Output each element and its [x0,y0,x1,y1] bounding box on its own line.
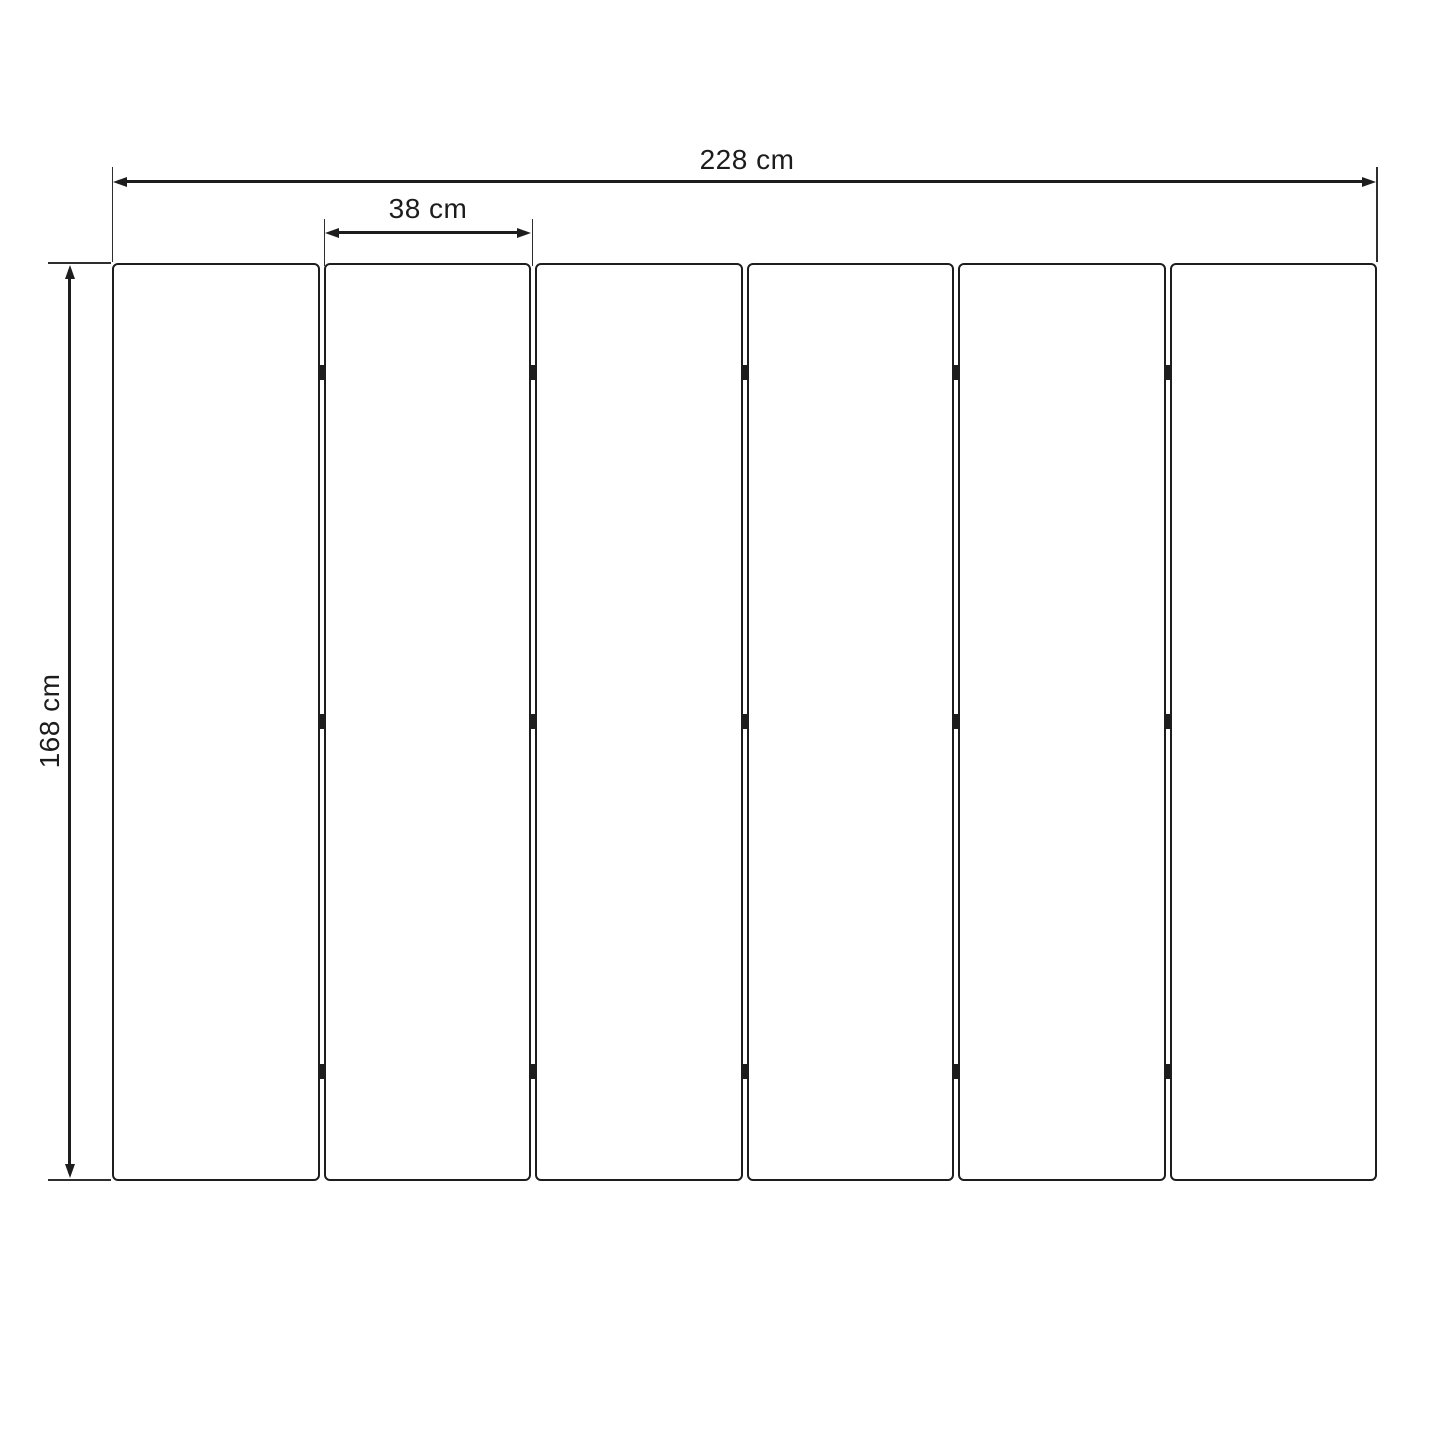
hinge-mark [1164,1064,1172,1079]
panel-6 [1170,263,1378,1181]
total-width-label: 228 cm [700,144,795,176]
arrow-up-icon [65,265,75,279]
extension-line [324,219,326,266]
height-label: 168 cm [34,674,66,769]
hinge-mark [952,1064,960,1079]
hinge-joint [952,263,960,1181]
hinge-mark [741,1064,749,1079]
panel-width-dimension-line [326,231,530,234]
panel-5 [958,263,1166,1181]
dimension-line-bar [68,270,71,1173]
arrow-left-icon [113,177,127,187]
hinge-joint [1164,263,1172,1181]
extension-line [48,262,111,264]
hinge-mark [318,365,326,380]
height-dimension-line [68,266,71,1177]
panel-3 [535,263,743,1181]
arrow-down-icon [65,1164,75,1178]
dimension-line-bar [118,180,1371,183]
hinge-mark [1164,365,1172,380]
hinge-mark [318,1064,326,1079]
hinge-mark [741,714,749,729]
hinge-mark [318,714,326,729]
dimension-line-bar [330,231,526,234]
hinge-mark [952,365,960,380]
arrow-left-icon [325,228,339,238]
hinge-mark [529,365,537,380]
hinge-joint [741,263,749,1181]
panel-2 [324,263,532,1181]
extension-line [1376,167,1378,262]
extension-line [532,219,534,266]
hinge-joint [529,263,537,1181]
extension-line [112,167,114,262]
hinge-mark [952,714,960,729]
hinge-joint [318,263,326,1181]
extension-line [48,1179,111,1181]
diagram-canvas: 228 cm 38 cm 168 cm [0,0,1445,1445]
hinge-mark [529,1064,537,1079]
hinge-mark [741,365,749,380]
arrow-right-icon [1362,177,1376,187]
panel-1 [112,263,320,1181]
arrow-right-icon [517,228,531,238]
panel-width-label: 38 cm [389,193,468,225]
total-width-dimension-line [114,180,1375,183]
hinge-mark [1164,714,1172,729]
hinge-mark [529,714,537,729]
panel-4 [747,263,955,1181]
